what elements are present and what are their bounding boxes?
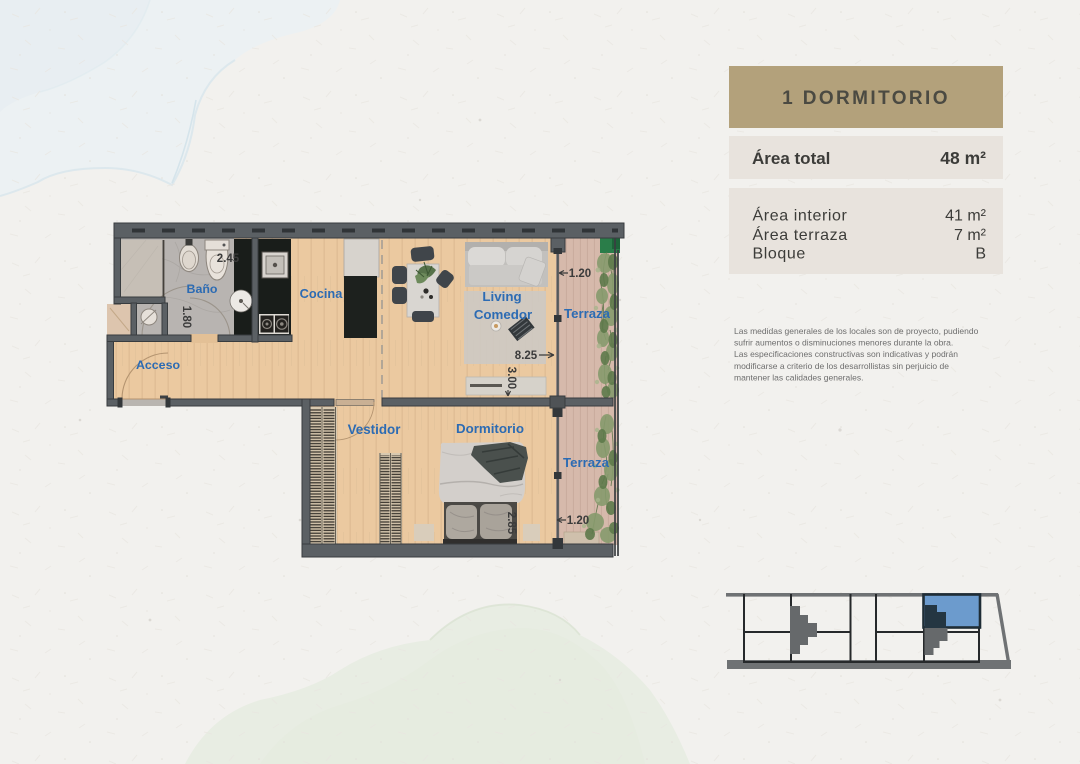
svg-text:Las especificaciones construct: Las especificaciones constructivas son i… <box>734 349 958 359</box>
svg-text:7 m²: 7 m² <box>954 227 987 244</box>
svg-text:Acceso: Acceso <box>136 358 181 372</box>
svg-text:Terraza: Terraza <box>564 306 611 321</box>
svg-text:Área terraza: Área terraza <box>753 225 848 244</box>
svg-text:Bloque: Bloque <box>753 245 806 262</box>
svg-text:2.85: 2.85 <box>505 512 517 535</box>
svg-text:Cocina: Cocina <box>300 286 344 301</box>
svg-text:Vestidor: Vestidor <box>348 422 402 437</box>
svg-text:Comedor: Comedor <box>474 307 532 322</box>
svg-text:Las medidas generales de los l: Las medidas generales de los locales son… <box>734 326 979 336</box>
svg-text:sufrir aumentos o disminucione: sufrir aumentos o disminuciones menores … <box>734 338 953 348</box>
svg-text:3.00: 3.00 <box>505 367 517 389</box>
svg-text:41 m²: 41 m² <box>945 208 987 225</box>
svg-text:1.80: 1.80 <box>180 306 192 328</box>
svg-text:modificarse a criterio de los: modificarse a criterio de los desarrolli… <box>734 361 949 371</box>
svg-text:Living: Living <box>482 289 521 304</box>
svg-text:1.20: 1.20 <box>569 268 591 280</box>
svg-text:Baño: Baño <box>187 282 218 296</box>
svg-text:Dormitorio: Dormitorio <box>456 421 524 436</box>
svg-text:mantener las calidades general: mantener las calidades generales. <box>734 372 863 382</box>
svg-text:Área total: Área total <box>752 149 830 168</box>
svg-text:Terraza: Terraza <box>563 455 610 470</box>
svg-text:2.45: 2.45 <box>217 253 240 265</box>
svg-text:8.25: 8.25 <box>515 350 538 362</box>
svg-text:1.20: 1.20 <box>567 515 589 527</box>
svg-text:B: B <box>975 245 986 262</box>
svg-text:1 DORMITORIO: 1 DORMITORIO <box>782 88 950 109</box>
svg-text:48 m²: 48 m² <box>940 148 986 168</box>
svg-text:Área interior: Área interior <box>753 206 848 225</box>
